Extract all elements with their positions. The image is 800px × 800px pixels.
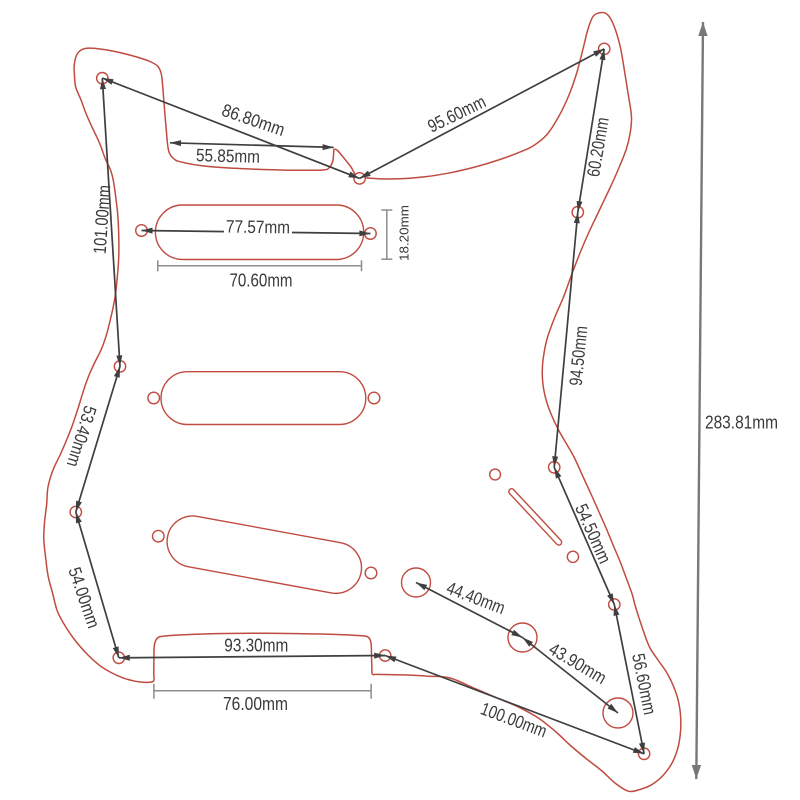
svg-text:77.57mm: 77.57mm: [226, 217, 290, 238]
svg-text:55.85mm: 55.85mm: [196, 145, 261, 167]
svg-text:93.30mm: 93.30mm: [224, 636, 288, 656]
svg-text:18.20mm: 18.20mm: [397, 205, 412, 261]
svg-text:283.81mm: 283.81mm: [705, 412, 778, 432]
svg-text:70.60mm: 70.60mm: [230, 271, 293, 291]
svg-text:76.00mm: 76.00mm: [223, 694, 288, 714]
